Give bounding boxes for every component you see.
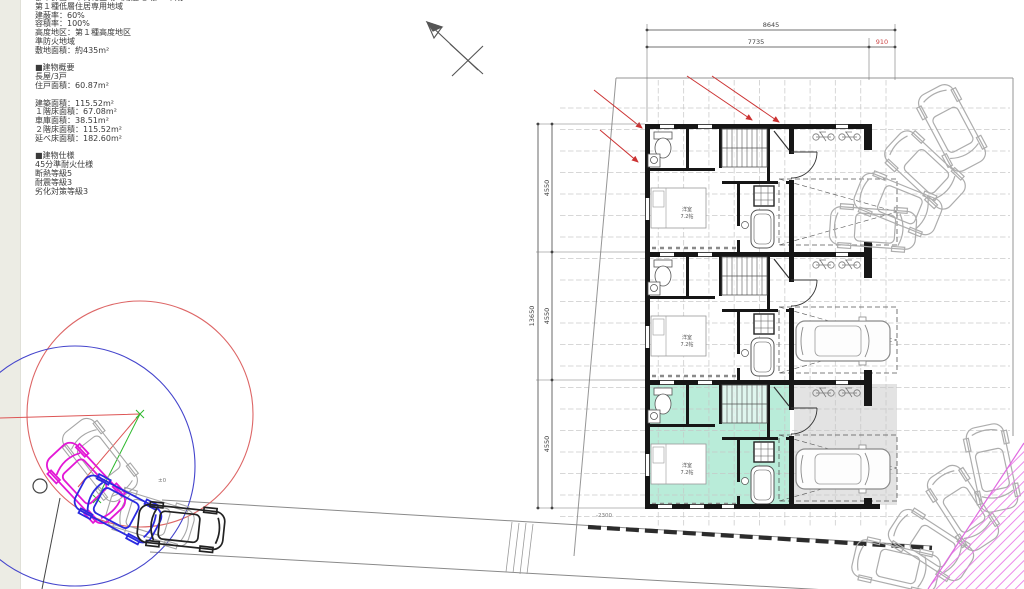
dim-top-total: 8645 <box>763 21 780 29</box>
room-label-unit-1: 洋室 <box>682 206 692 213</box>
room-size-unit-1: 7.2帖 <box>681 213 694 220</box>
dim-seg-1: 4550 <box>543 180 551 197</box>
window-gap <box>658 505 672 508</box>
dim-top-sub: 910 <box>876 38 888 46</box>
window-gap <box>722 505 734 508</box>
room-size-unit-2: 7.2帖 <box>681 341 694 348</box>
building-bottom-wall <box>645 504 880 509</box>
level-note: -2300 <box>596 513 612 519</box>
room-label-unit-2: 洋室 <box>682 334 692 341</box>
dim-left-total: 13650 <box>528 306 536 327</box>
site-plan-svg: 洋室 7.2帖 洋室 7.2帖 洋室 7.2帖 8645 7735 910 <box>0 0 1024 589</box>
road-hatch-ticks <box>506 522 533 574</box>
ground-level-note: ±0 <box>158 478 167 484</box>
turn-circle-blue <box>0 346 195 586</box>
room-size-unit-3: 7.2帖 <box>681 469 694 476</box>
dim-seg-3: 4550 <box>543 436 551 453</box>
parked-car-unit-2 <box>796 317 890 365</box>
utility-pole <box>33 479 47 493</box>
road-boundary-hatch-strip <box>588 527 932 548</box>
car-position-magenta <box>41 437 132 530</box>
north-arrow-icon <box>427 22 483 76</box>
parked-car-unit-3 <box>796 445 890 493</box>
cad-drawing-canvas: 都市計画：市街化区域（用途地域） 平成 第１種低層住居専用地域 建蔽率：60% … <box>0 0 1024 589</box>
survey-grid <box>558 78 1010 526</box>
window-gap <box>690 505 704 508</box>
room-label-unit-3: 洋室 <box>682 462 692 469</box>
turning-radius-diagram <box>0 301 253 589</box>
dim-seg-2: 4550 <box>543 308 551 325</box>
dim-top-main: 7735 <box>748 38 765 46</box>
